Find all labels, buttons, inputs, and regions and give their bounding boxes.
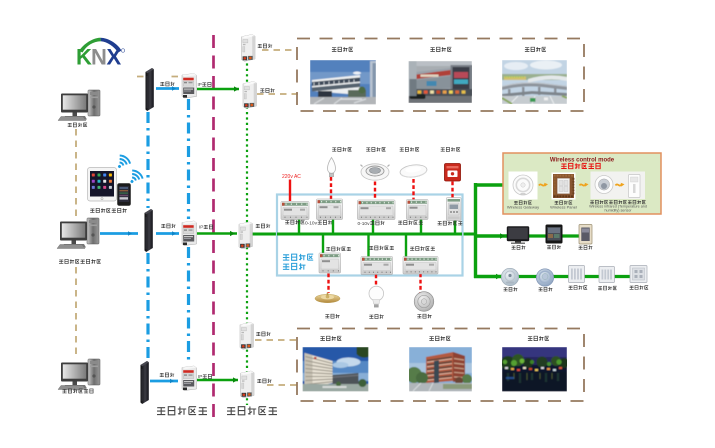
svg-text:IP: IP xyxy=(199,225,203,230)
svg-text:Wireless control mode: Wireless control mode xyxy=(550,158,615,164)
svg-text:0-10v: 0-10v xyxy=(305,221,318,227)
svg-text:Wireless Gateway: Wireless Gateway xyxy=(507,205,539,210)
svg-text:X: X xyxy=(107,45,122,70)
svg-text:K: K xyxy=(76,45,92,70)
svg-text:IP: IP xyxy=(198,374,202,379)
svg-text:220v AC: 220v AC xyxy=(282,174,301,180)
svg-text:IP: IP xyxy=(198,82,202,87)
svg-text:humidity) sensor: humidity) sensor xyxy=(604,209,632,213)
svg-text:N: N xyxy=(91,45,106,70)
svg-text:0-10v: 0-10v xyxy=(358,221,371,227)
svg-text:Wireless Panel: Wireless Panel xyxy=(550,205,577,210)
